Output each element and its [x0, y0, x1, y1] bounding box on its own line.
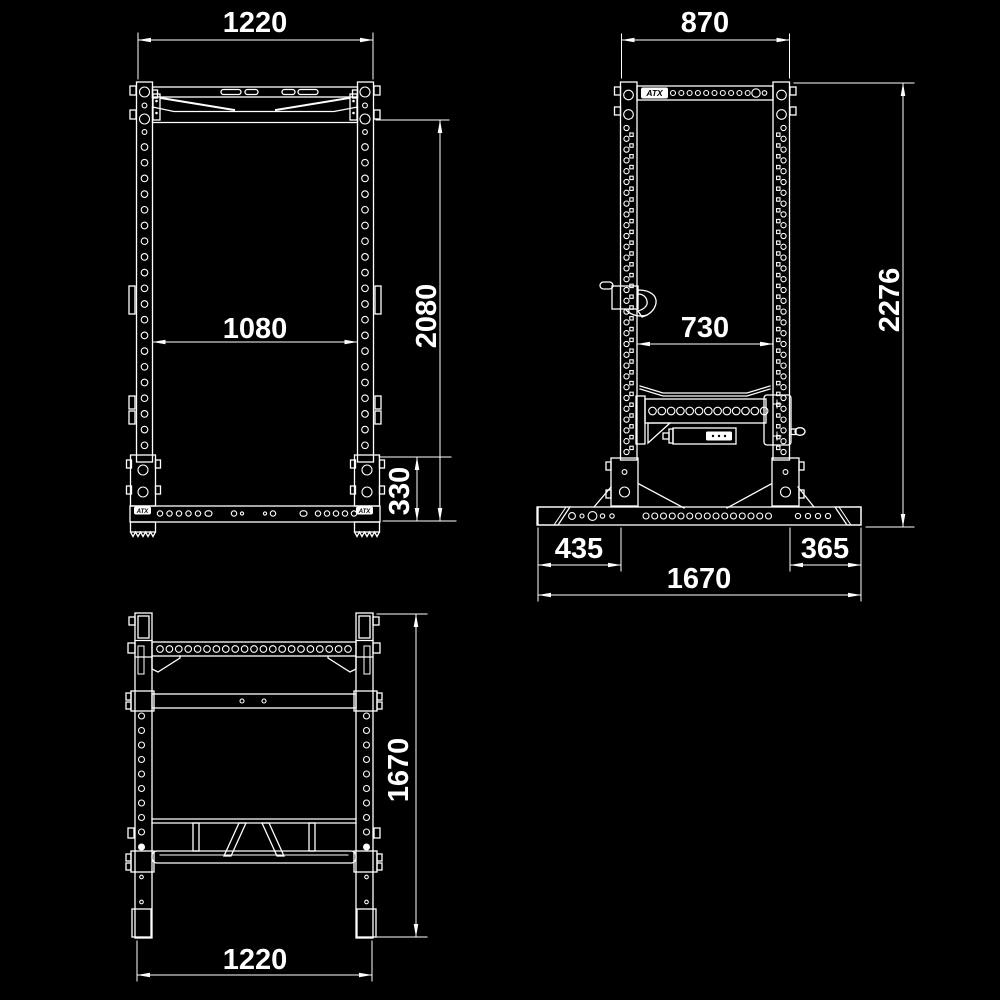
side-view: ATX [537, 7, 914, 601]
barbell-holder [663, 428, 736, 444]
dim-top-overall-depth-label: 1670 [383, 738, 415, 803]
dim-side-overall-height-label: 2276 [874, 268, 906, 333]
dim-front-inner-width: 1080 [153, 313, 358, 345]
dim-front-height-label: 2080 [411, 284, 443, 349]
side-base-blocks [594, 458, 814, 508]
dim-side-front-foot-label: 435 [555, 533, 603, 565]
top-holed-beam [128, 642, 380, 672]
technical-drawing-page: ATX ATX 1220 1080 [0, 0, 1000, 1000]
top-view: 1670 1220 [126, 613, 427, 981]
dim-front-overall-width: 1220 [138, 7, 373, 79]
dim-front-overall-width-label: 1220 [223, 7, 288, 39]
atx-logo-small-right: ATX [356, 507, 373, 515]
dim-side-rear-foot-label: 365 [801, 533, 849, 565]
dim-front-inner-width-label: 1080 [223, 313, 288, 345]
side-left-upright [615, 82, 638, 460]
dim-front-height: 2080 [376, 120, 456, 521]
front-view: ATX ATX 1220 1080 [127, 7, 457, 537]
dim-front-base-height-label: 330 [384, 467, 416, 515]
dim-side-overall-height: 2276 [794, 83, 914, 527]
dim-side-rear-foot: 365 [790, 528, 861, 601]
dim-top-overall-depth: 1670 [377, 614, 427, 937]
power-rack-drawing: ATX ATX 1220 1080 [0, 0, 1000, 1000]
top-right-rail [354, 613, 382, 938]
dim-side-overall-depth-label: 1670 [667, 563, 732, 595]
j-hook [600, 282, 656, 317]
dim-side-inner-depth-label: 730 [681, 312, 729, 344]
side-right-upright [773, 82, 796, 460]
dim-side-front-foot: 435 [538, 528, 621, 601]
dim-side-top-depth: 870 [622, 7, 790, 78]
atx-logo-text: ATX [645, 88, 664, 98]
dim-side-overall-depth: 1670 [538, 563, 861, 597]
front-base-blocks [127, 455, 385, 506]
front-pullup-bar-assembly [153, 87, 358, 123]
front-right-upright [353, 82, 382, 462]
side-top-beam: ATX [637, 86, 773, 100]
front-foot-pads [131, 522, 380, 537]
front-bottom-beam: ATX ATX [130, 506, 380, 522]
top-pullup-assembly [152, 819, 356, 863]
top-crossbar [152, 694, 356, 708]
dim-top-overall-width-label: 1220 [223, 944, 288, 976]
atx-logo-small-left: ATX [134, 507, 151, 515]
front-left-upright [129, 82, 158, 462]
dim-top-overall-width: 1220 [137, 941, 372, 981]
atx-logo: ATX [641, 88, 668, 99]
atx-logo-small-left-text: ATX [136, 509, 150, 515]
side-feet [537, 507, 861, 525]
side-pin [791, 428, 805, 436]
dim-side-top-depth-label: 870 [681, 7, 729, 39]
dim-side-inner-depth: 730 [637, 312, 773, 346]
top-left-rail [126, 613, 154, 938]
atx-logo-small-right-text: ATX [358, 509, 372, 515]
